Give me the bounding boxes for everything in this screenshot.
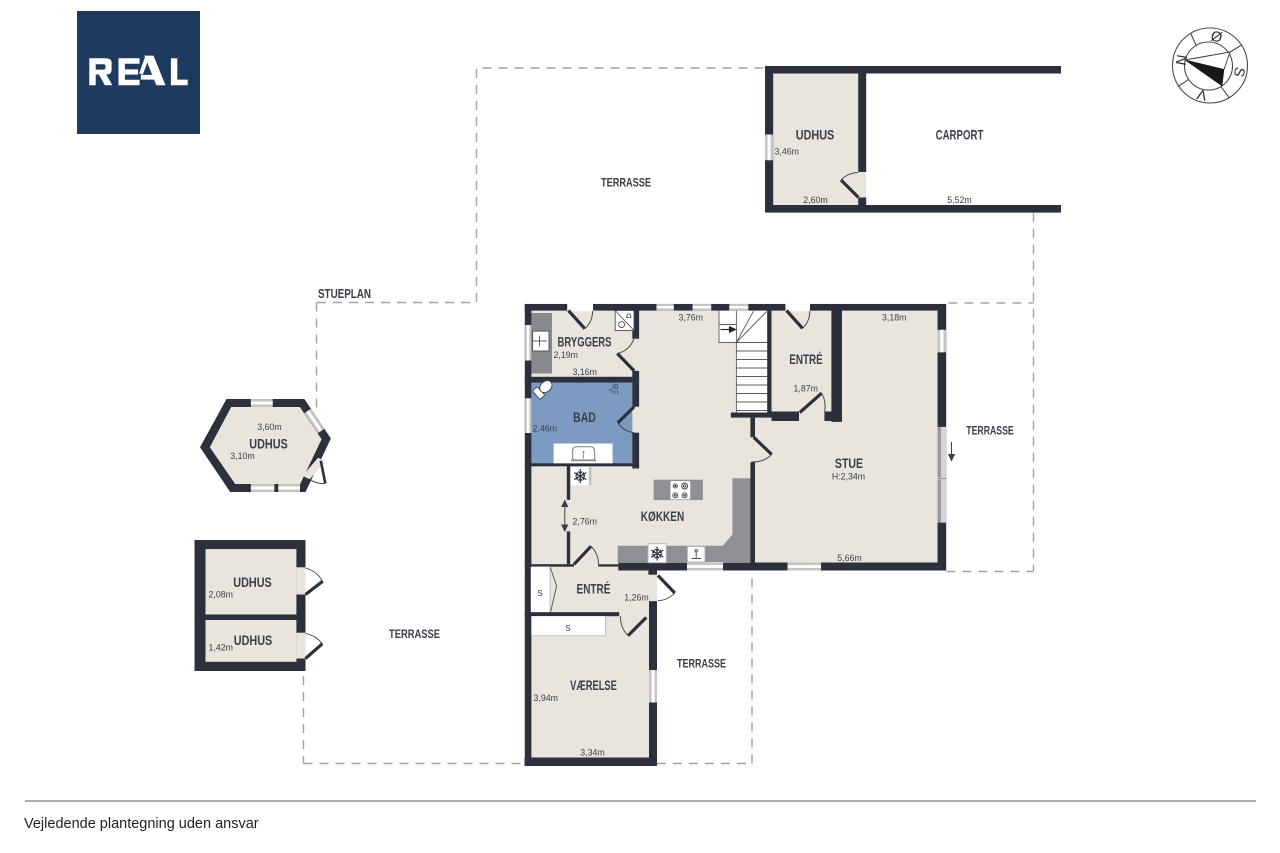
svg-text:TERRASSE: TERRASSE: [389, 628, 440, 641]
svg-text:3,60m: 3,60m: [257, 422, 281, 432]
svg-text:3,94m: 3,94m: [534, 693, 558, 703]
svg-text:TERRASSE: TERRASSE: [601, 177, 651, 190]
svg-text:Vejledende plantegning uden an: Vejledende plantegning uden ansvar: [24, 816, 259, 832]
svg-text:ENTRÉ: ENTRÉ: [577, 581, 611, 597]
svg-text:VÆRELSE: VÆRELSE: [570, 677, 617, 693]
svg-text:UDHUS: UDHUS: [233, 574, 272, 590]
svg-text:UDHUS: UDHUS: [249, 436, 288, 452]
svg-text:3,76m: 3,76m: [679, 313, 703, 323]
svg-text:STUE: STUE: [835, 455, 863, 471]
svg-text:2,08m: 2,08m: [209, 590, 233, 600]
svg-text:5,66m: 5,66m: [837, 553, 861, 563]
svg-text:2,60m: 2,60m: [803, 195, 827, 205]
svg-text:2,19m: 2,19m: [554, 350, 578, 360]
svg-text:5,52m: 5,52m: [947, 195, 971, 205]
svg-text:3,18m: 3,18m: [882, 313, 906, 323]
svg-text:1,42m: 1,42m: [209, 643, 233, 653]
svg-text:3,10m: 3,10m: [230, 451, 254, 461]
svg-text:H:2,34m: H:2,34m: [832, 472, 865, 482]
svg-text:UDHUS: UDHUS: [234, 632, 273, 648]
svg-text:1,26m: 1,26m: [624, 593, 648, 603]
svg-text:S: S: [537, 589, 542, 598]
svg-text:1,87m: 1,87m: [794, 384, 818, 394]
svg-text:STUEPLAN: STUEPLAN: [318, 286, 371, 301]
svg-text:3,34m: 3,34m: [580, 748, 604, 758]
svg-text:TERRASSE: TERRASSE: [966, 425, 1014, 438]
svg-text:S: S: [565, 624, 570, 633]
svg-text:UDHUS: UDHUS: [796, 127, 835, 143]
svg-text:3,46m: 3,46m: [775, 147, 799, 157]
svg-text:ENTRÉ: ENTRÉ: [789, 351, 822, 367]
svg-text:BRYGGERS: BRYGGERS: [558, 334, 612, 350]
svg-text:2,46m: 2,46m: [533, 424, 557, 434]
svg-text:BAD: BAD: [573, 409, 596, 425]
svg-text:2,76m: 2,76m: [573, 517, 597, 527]
svg-text:TERRASSE: TERRASSE: [677, 658, 726, 671]
svg-text:3,16m: 3,16m: [573, 367, 597, 377]
svg-text:KØKKEN: KØKKEN: [641, 508, 684, 524]
svg-text:CARPORT: CARPORT: [936, 127, 984, 143]
